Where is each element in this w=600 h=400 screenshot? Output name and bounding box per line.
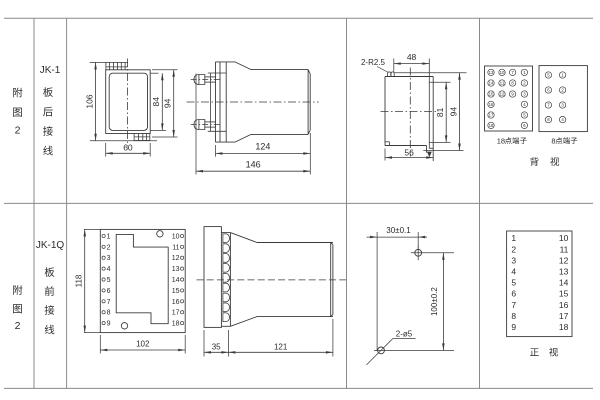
svg-text:30±0.1: 30±0.1 <box>386 226 411 235</box>
svg-text:81: 81 <box>435 107 445 117</box>
svg-text:118: 118 <box>75 274 84 287</box>
svg-text:14: 14 <box>559 278 569 288</box>
svg-text:106: 106 <box>84 94 94 108</box>
svg-text:2: 2 <box>561 88 564 93</box>
svg-text:17: 17 <box>489 113 494 118</box>
svg-text:5: 5 <box>547 73 550 78</box>
svg-text:35: 35 <box>212 342 221 351</box>
svg-text:8: 8 <box>511 311 516 321</box>
svg-text:7: 7 <box>511 70 514 75</box>
svg-text:13: 13 <box>489 70 494 75</box>
svg-text:15: 15 <box>559 289 569 299</box>
svg-text:11: 11 <box>500 81 505 86</box>
svg-text:8: 8 <box>511 81 514 86</box>
svg-text:100±0.2: 100±0.2 <box>430 287 439 316</box>
svg-text:7: 7 <box>511 300 516 310</box>
svg-text:JK-1Q: JK-1Q <box>36 240 65 251</box>
svg-text:17: 17 <box>172 310 180 317</box>
svg-text:8: 8 <box>547 117 550 122</box>
svg-text:4: 4 <box>511 267 516 277</box>
svg-text:1: 1 <box>107 233 111 240</box>
svg-text:7: 7 <box>547 103 550 108</box>
svg-text:3: 3 <box>511 255 516 265</box>
svg-text:18: 18 <box>489 123 494 128</box>
svg-text:84: 84 <box>151 97 161 107</box>
svg-text:2: 2 <box>511 244 516 254</box>
svg-text:14: 14 <box>489 81 494 86</box>
svg-text:18: 18 <box>497 136 505 145</box>
svg-text:15: 15 <box>172 288 180 295</box>
svg-text:15: 15 <box>489 92 494 97</box>
svg-text:146: 146 <box>246 159 261 169</box>
svg-text:2: 2 <box>523 81 526 86</box>
svg-text:14: 14 <box>172 277 180 284</box>
svg-text:3: 3 <box>107 255 111 262</box>
svg-text:9: 9 <box>511 92 514 97</box>
svg-text:2: 2 <box>15 320 21 332</box>
svg-text:1: 1 <box>561 73 564 78</box>
svg-text:94: 94 <box>163 98 173 108</box>
svg-text:17: 17 <box>559 311 569 321</box>
svg-text:8: 8 <box>107 310 111 317</box>
svg-text:6: 6 <box>523 123 526 128</box>
svg-text:6: 6 <box>511 289 516 299</box>
svg-text:4: 4 <box>523 102 526 107</box>
svg-text:121: 121 <box>274 342 288 351</box>
svg-text:13: 13 <box>172 266 180 273</box>
svg-text:11: 11 <box>172 244 179 251</box>
svg-text:94: 94 <box>448 107 458 117</box>
svg-text:8: 8 <box>551 136 555 145</box>
svg-text:4: 4 <box>561 117 564 122</box>
svg-text:60: 60 <box>123 142 133 152</box>
svg-text:6: 6 <box>547 88 550 93</box>
svg-text:1: 1 <box>511 233 516 243</box>
svg-text:2-ø5: 2-ø5 <box>396 329 413 338</box>
svg-text:JK-1: JK-1 <box>40 65 61 76</box>
svg-text:2: 2 <box>107 244 111 251</box>
svg-text:2-R2.5: 2-R2.5 <box>361 58 386 67</box>
svg-text:12: 12 <box>559 255 569 265</box>
svg-text:3: 3 <box>561 103 564 108</box>
svg-text:7: 7 <box>107 299 111 306</box>
svg-text:4: 4 <box>107 266 111 273</box>
svg-text:18: 18 <box>559 322 569 332</box>
svg-text:48: 48 <box>407 52 417 62</box>
svg-text:16: 16 <box>489 102 494 107</box>
svg-text:2: 2 <box>15 125 21 137</box>
svg-text:9: 9 <box>107 321 111 328</box>
svg-text:56: 56 <box>404 148 414 158</box>
svg-text:10: 10 <box>500 70 505 75</box>
svg-text:9: 9 <box>511 322 516 332</box>
svg-text:3: 3 <box>523 92 526 97</box>
svg-text:10: 10 <box>172 233 180 240</box>
svg-text:5: 5 <box>523 113 526 118</box>
svg-text:13: 13 <box>559 267 569 277</box>
svg-text:1: 1 <box>523 70 526 75</box>
svg-text:16: 16 <box>559 300 569 310</box>
svg-text:124: 124 <box>255 141 270 151</box>
svg-text:5: 5 <box>107 277 111 284</box>
svg-text:5: 5 <box>511 278 516 288</box>
svg-text:102: 102 <box>136 340 150 349</box>
svg-text:18: 18 <box>172 321 180 328</box>
svg-text:6: 6 <box>107 288 111 295</box>
svg-text:12: 12 <box>500 92 505 97</box>
svg-text:10: 10 <box>559 233 569 243</box>
svg-text:16: 16 <box>172 299 180 306</box>
svg-text:11: 11 <box>560 244 569 254</box>
svg-text:12: 12 <box>172 255 180 262</box>
